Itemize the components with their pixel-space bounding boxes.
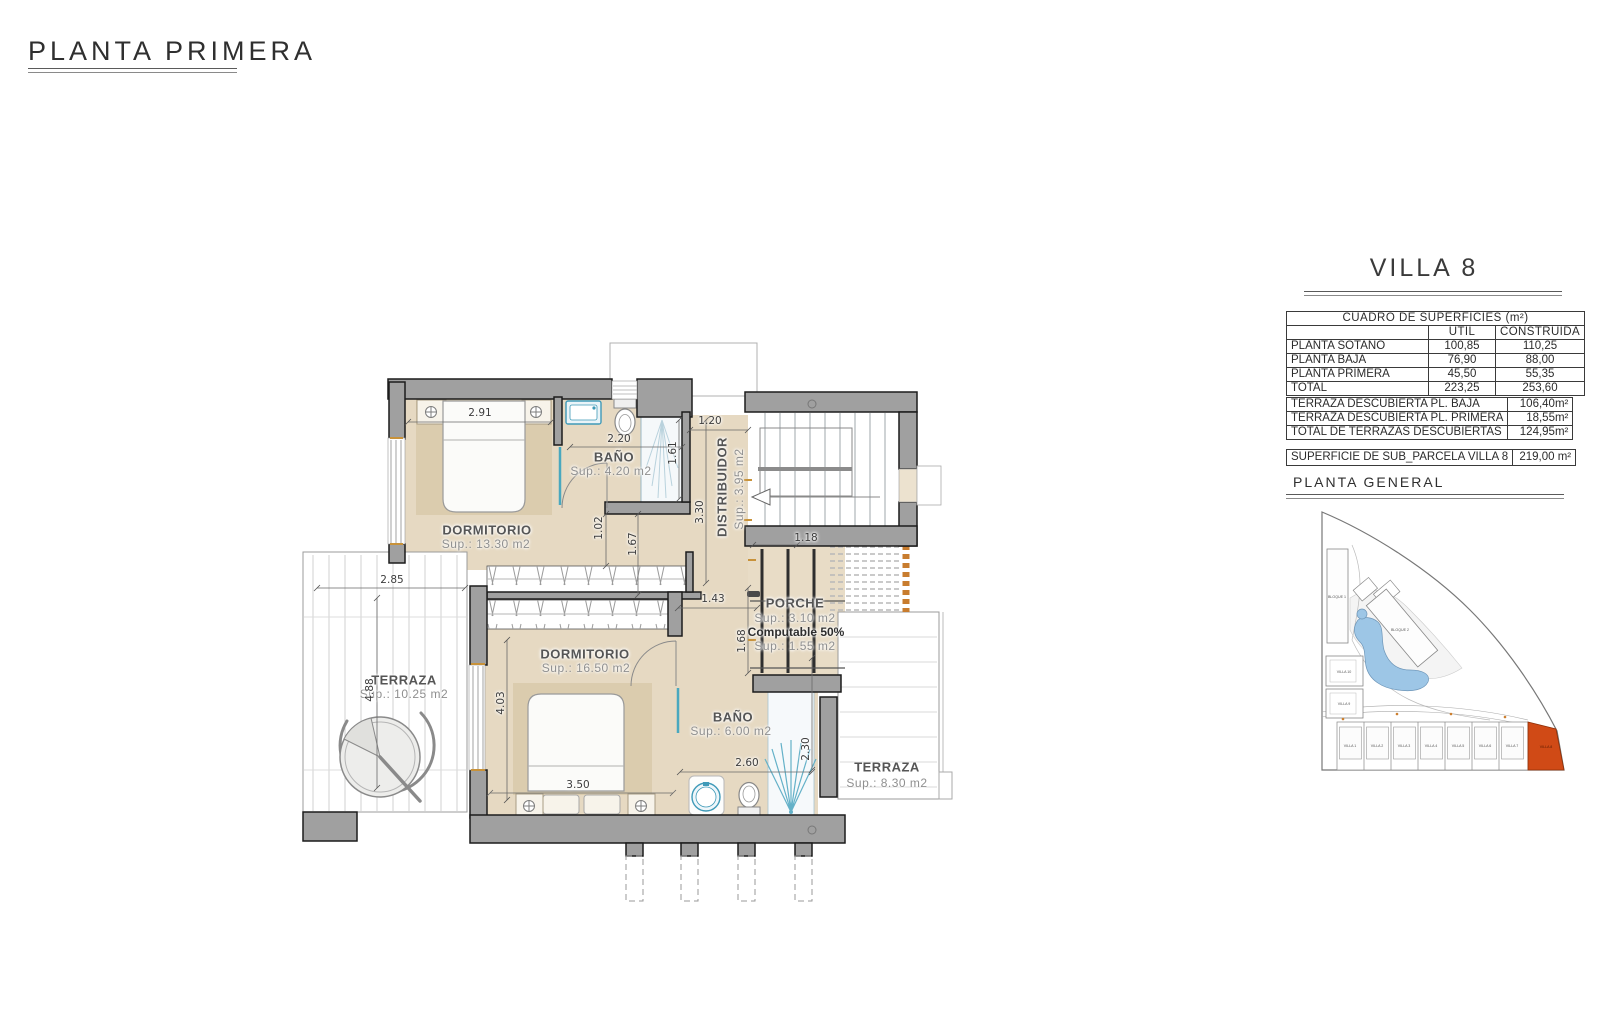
parcel-label: SUPERFICIE DE SUB_PARCELA VILLA 8 bbox=[1287, 450, 1513, 466]
dim-2-91: 2.91 bbox=[468, 407, 491, 419]
row-util: 45,50 bbox=[1429, 368, 1496, 382]
parcel-table: SUPERFICIE DE SUB_PARCELA VILLA 8 219,00… bbox=[1286, 449, 1576, 466]
dim-1-43: 1.43 bbox=[701, 593, 724, 605]
row-label: TERRAZA DESCUBIERTA PL. BAJA bbox=[1287, 398, 1508, 412]
site-label-villa10: VILLA 10 bbox=[1337, 670, 1352, 674]
site-label-villa9: VILLA 9 bbox=[1338, 702, 1351, 706]
dim-2-30: 2.30 bbox=[800, 737, 812, 760]
surfaces-col-util: UTIL bbox=[1429, 326, 1496, 340]
row-label: TOTAL bbox=[1287, 382, 1429, 396]
table-row: PLANTA PRIMERA 45,50 55,35 bbox=[1287, 368, 1585, 382]
site-label-villa8: VILLA 8 bbox=[1540, 745, 1553, 749]
room-sup-porche: Sup.: 3.10 m2 bbox=[754, 611, 835, 625]
surfaces-table-title: CUADRO DE SUPERFICIES (m²) bbox=[1287, 312, 1585, 326]
dim-2-20: 2.20 bbox=[607, 433, 630, 445]
row-util: 223,25 bbox=[1429, 382, 1496, 396]
dim-1-67: 1.67 bbox=[627, 532, 639, 555]
site-label-villa1: VILLA 1 bbox=[1344, 744, 1357, 748]
row-util: 76,90 bbox=[1429, 354, 1496, 368]
row-util: 100,85 bbox=[1429, 340, 1496, 354]
dim-1-18: 1.18 bbox=[794, 532, 817, 544]
dim-3-30: 3.30 bbox=[694, 500, 706, 523]
dim-3-50: 3.50 bbox=[566, 779, 589, 791]
table-row: PLANTA BAJA 76,90 88,00 bbox=[1287, 354, 1585, 368]
table-row: TERRAZA DESCUBIERTA PL. PRIMERA 18,55m² bbox=[1287, 412, 1573, 426]
table-row: TOTAL 223,25 253,60 bbox=[1287, 382, 1585, 396]
title-rule bbox=[28, 68, 237, 73]
dim-4-88: 4.88 bbox=[364, 678, 376, 701]
dim-1-20: 1.20 bbox=[698, 415, 721, 427]
plan-drawing: BLOQUE 1 BLOQUE 2 VILLA 10 VILLA 9 VILLA… bbox=[0, 0, 1600, 1024]
room-label-terraza1: TERRAZA bbox=[371, 673, 437, 688]
site-label-villa4: VILLA 4 bbox=[1425, 744, 1438, 748]
surfaces-table: CUADRO DE SUPERFICIES (m²) UTIL CONSTRUI… bbox=[1286, 311, 1585, 396]
dim-1-02: 1.02 bbox=[593, 516, 605, 539]
planta-general-title: PLANTA GENERAL bbox=[1293, 474, 1444, 490]
site-label-bloque2: BLOQUE 2 bbox=[1391, 628, 1409, 632]
table-row: TOTAL DE TERRAZAS DESCUBIERTAS 124,95m² bbox=[1287, 426, 1573, 440]
room-label-terraza2: TERRAZA bbox=[854, 760, 920, 775]
room-computable-porche: Computable 50% bbox=[748, 625, 845, 639]
room-label-dormitorio1: DORMITORIO bbox=[442, 523, 531, 538]
room-label-dormitorio2: DORMITORIO bbox=[540, 647, 629, 662]
room-label-bano1: BAÑO bbox=[594, 450, 634, 465]
dim-4-03: 4.03 bbox=[495, 691, 507, 714]
row-value: 106,40m² bbox=[1508, 398, 1573, 412]
planta-general-rule bbox=[1286, 494, 1564, 499]
villa-title: VILLA 8 bbox=[1286, 254, 1562, 283]
room-sup-terraza2: Sup.: 8.30 m2 bbox=[846, 776, 927, 790]
dim-2-60: 2.60 bbox=[735, 757, 758, 769]
table-row: UTIL CONSTRUIDA bbox=[1287, 326, 1585, 340]
dim-1-61: 1.61 bbox=[667, 441, 679, 464]
surfaces-col-construida: CONSTRUIDA bbox=[1496, 326, 1585, 340]
row-construida: 253,60 bbox=[1496, 382, 1585, 396]
row-value: 124,95m² bbox=[1508, 426, 1573, 440]
table-row: PLANTA SOTANO 100,85 110,25 bbox=[1287, 340, 1585, 354]
room-sup-bano2: Sup.: 6.00 m2 bbox=[690, 724, 771, 738]
site-label-villa2: VILLA 2 bbox=[1371, 744, 1384, 748]
site-label-villa7: VILLA 7 bbox=[1506, 744, 1519, 748]
site-label-villa5: VILLA 5 bbox=[1452, 744, 1465, 748]
table-row: TERRAZA DESCUBIERTA PL. BAJA 106,40m² bbox=[1287, 398, 1573, 412]
row-label: PLANTA PRIMERA bbox=[1287, 368, 1429, 382]
pillars-below bbox=[626, 856, 812, 901]
room-sup-dormitorio1: Sup.: 13.30 m2 bbox=[442, 537, 530, 551]
terraces-table: TERRAZA DESCUBIERTA PL. BAJA 106,40m² TE… bbox=[1286, 397, 1573, 440]
room-sup2-porche: Sup.: 1.55 m2 bbox=[754, 639, 835, 653]
table-row: CUADRO DE SUPERFICIES (m²) bbox=[1287, 312, 1585, 326]
row-label: PLANTA BAJA bbox=[1287, 354, 1429, 368]
row-construida: 88,00 bbox=[1496, 354, 1585, 368]
site-plan: BLOQUE 1 BLOQUE 2 VILLA 10 VILLA 9 VILLA… bbox=[1322, 512, 1564, 770]
row-value: 18,55m² bbox=[1508, 412, 1573, 426]
surfaces-corner-cell bbox=[1287, 326, 1429, 340]
row-label: TERRAZA DESCUBIERTA PL. PRIMERA bbox=[1287, 412, 1508, 426]
table-row: SUPERFICIE DE SUB_PARCELA VILLA 8 219,00… bbox=[1287, 450, 1576, 466]
room-sup-bano1: Sup.: 4.20 m2 bbox=[570, 464, 651, 478]
villa-title-rule bbox=[1304, 291, 1562, 296]
row-construida: 55,35 bbox=[1496, 368, 1585, 382]
row-label: TOTAL DE TERRAZAS DESCUBIERTAS bbox=[1287, 426, 1508, 440]
sheet-title: PLANTA PRIMERA bbox=[28, 36, 316, 67]
room-sup-dormitorio2: Sup.: 16.50 m2 bbox=[542, 661, 630, 675]
drawing-sheet: { "header": { "title": "PLANTA PRIMERA" … bbox=[0, 0, 1600, 1024]
dim-1-68: 1.68 bbox=[736, 629, 748, 652]
room-label-porche: PORCHE bbox=[766, 596, 825, 611]
parcel-value: 219,00 m² bbox=[1513, 450, 1576, 466]
site-label-villa6: VILLA 6 bbox=[1479, 744, 1492, 748]
room-label-distribuidor: DISTRIBUIDOR bbox=[715, 437, 730, 537]
site-label-bloque1: BLOQUE 1 bbox=[1328, 595, 1346, 599]
dim-2-85: 2.85 bbox=[380, 574, 403, 586]
site-label-villa3: VILLA 3 bbox=[1398, 744, 1411, 748]
room-label-bano2: BAÑO bbox=[713, 710, 753, 725]
room-sup-distribuidor: Sup.: 3.95 m2 bbox=[732, 448, 746, 529]
row-label: PLANTA SOTANO bbox=[1287, 340, 1429, 354]
row-construida: 110,25 bbox=[1496, 340, 1585, 354]
